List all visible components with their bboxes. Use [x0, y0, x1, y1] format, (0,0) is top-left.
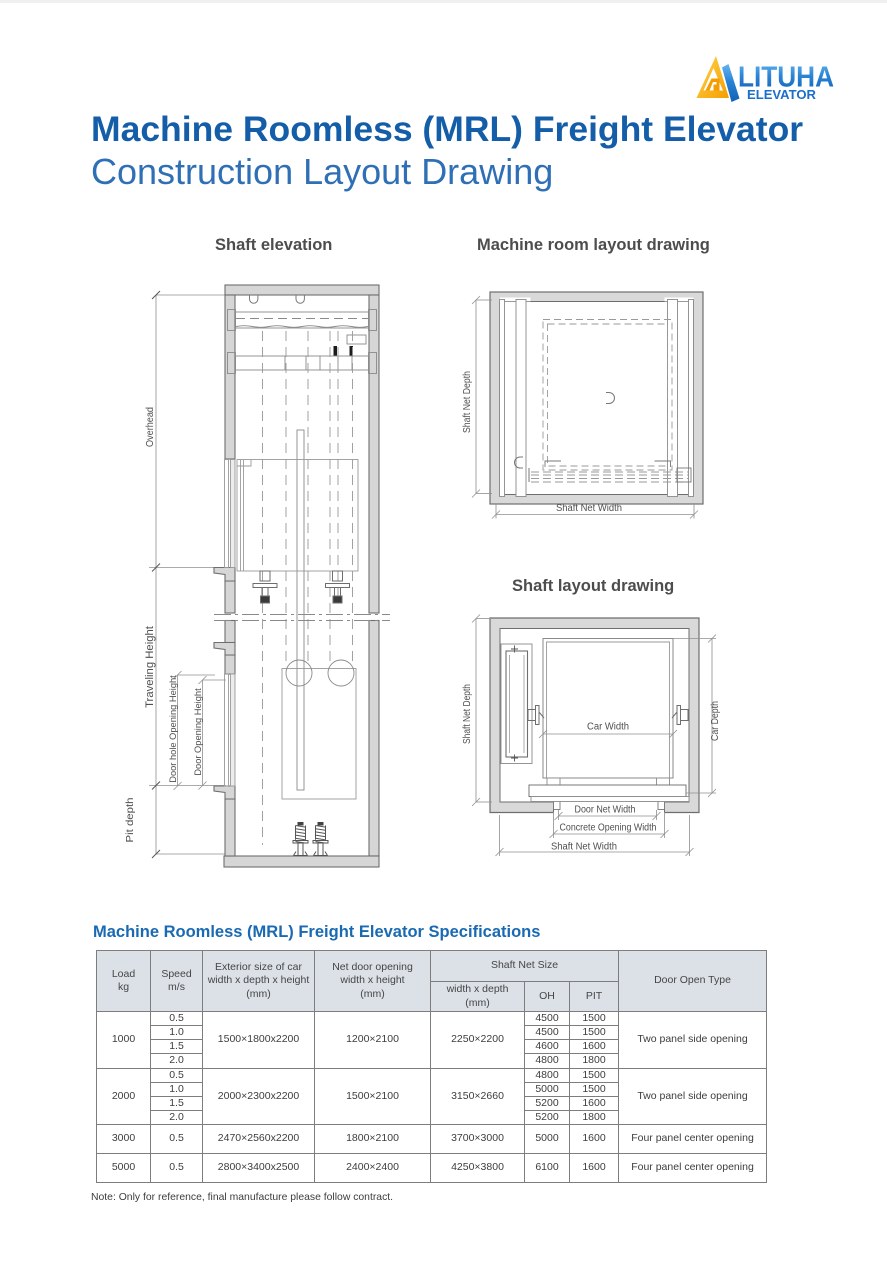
svg-text:Door Opening Height: Door Opening Height — [193, 688, 203, 776]
svg-text:Shaft Net Width: Shaft Net Width — [556, 503, 622, 514]
svg-text:Shaft Net Depth: Shaft Net Depth — [462, 371, 473, 433]
svg-text:Overhead: Overhead — [145, 407, 156, 447]
svg-text:Concrete Opening Width: Concrete Opening Width — [560, 823, 657, 834]
svg-text:Car Depth: Car Depth — [710, 701, 721, 741]
svg-text:Shaft Net Depth: Shaft Net Depth — [462, 684, 473, 744]
svg-text:Shaft Net Width: Shaft Net Width — [551, 842, 617, 853]
svg-text:Traveling Height: Traveling Height — [144, 625, 156, 708]
svg-text:Door hole Opening Height: Door hole Opening Height — [168, 675, 178, 783]
svg-text:Door Net Width: Door Net Width — [575, 805, 636, 816]
svg-text:Pit depth: Pit depth — [124, 797, 136, 842]
svg-text:Car Width: Car Width — [587, 722, 629, 733]
